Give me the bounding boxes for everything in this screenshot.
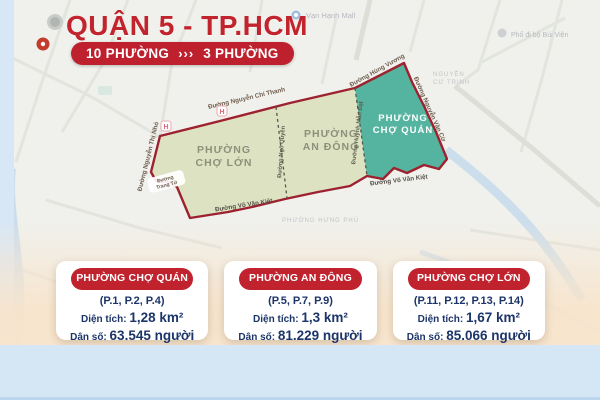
poi-marker-red-icon [37,38,50,51]
population-label: Dân số: [407,332,444,343]
area-value: 1,67 km² [466,310,520,325]
card-title-badge: PHƯỜNG AN ĐÔNG [239,268,361,290]
region-label-cho-lon: PHƯỜNG [197,143,251,156]
card-an-dong[interactable]: PHƯỜNG AN ĐÔNG (P.5, P.7, P.9) Diện tích… [224,261,376,340]
card-cho-lon[interactable]: PHƯỜNG CHỢ LỚN (P.11, P.12, P.13, P.14) … [393,261,545,340]
page-title: QUẬN 5 - TP.HCM [66,10,308,42]
bg-label-bui-vien: Phố đi bộ Bùi Viện [511,30,569,39]
ward-cards-row: PHƯỜNG CHỢ QUÁN (P.1, P.2, P.4) Diện tíc… [56,261,545,340]
card-wards: (P.5, P.7, P.9) [229,295,371,307]
card-wards: (P.11, P.12, P.13, P.14) [398,295,540,307]
bg-label-van-hanh-mall: Vạn Hạnh Mall [306,11,356,20]
area-label: Diện tích: [418,314,464,325]
ward-count-badge: 10 PHƯỜNG ››› 3 PHƯỜNG [71,42,294,65]
population-value: 63.545 người [110,328,195,343]
area-label: Diện tích: [81,314,127,325]
card-population: Dân số: 81.229 người [229,328,371,346]
region-label-cho-lon-2: CHỢ LỚN [196,156,253,169]
population-label: Dân số: [238,332,275,343]
card-area: Diện tích: 1,28 km² [61,310,203,328]
area-value: 1,28 km² [129,310,183,325]
bg-label-nguyen-cu-trinh: NGUYỄN [433,71,465,78]
region-label-cho-quan: PHƯỜNG [378,112,427,124]
card-title-badge: PHƯỜNG CHỢ QUÁN [71,268,193,290]
arrows-icon: ››› [178,47,194,60]
bg-label-nguyen-cu-trinh-2: CƯ TRINH [433,80,470,86]
bg-label-hung-phu: PHƯỜNG HƯNG PHÚ [282,217,359,224]
population-value: 85.066 người [446,328,531,343]
region-label-an-dong-2: AN ĐÔNG [303,140,360,153]
population-label: Dân số: [70,332,107,343]
badge-to-label: 3 PHƯỜNG [203,46,278,61]
hospital-marker-h2: H [219,109,224,116]
infographic-canvas: PHƯỜNG CHỢ LỚN PHƯỜNG AN ĐÔNG PHƯỜNG CHỢ… [0,0,600,400]
badge-from-label: 10 PHƯỜNG [86,46,169,61]
footer-bar: ARENTAL Đơn vị quản lý vận hành và cung … [0,345,600,400]
region-label-an-dong: PHƯỜNG [304,127,358,140]
card-cho-quan[interactable]: PHƯỜNG CHỢ QUÁN (P.1, P.2, P.4) Diện tíc… [56,261,208,340]
area-label: Diện tích: [253,314,299,325]
area-value: 1,3 km² [301,310,348,325]
card-population: Dân số: 63.545 người [61,328,203,346]
hospital-marker-h: H [163,124,168,131]
population-value: 81.229 người [278,328,363,343]
card-wards: (P.1, P.2, P.4) [61,295,203,307]
card-area: Diện tích: 1,3 km² [229,310,371,328]
left-blue-strip [0,0,14,345]
card-title-badge: PHƯỜNG CHỢ LỚN [408,268,530,290]
card-population: Dân số: 85.066 người [398,328,540,346]
region-label-cho-quan-2: CHỢ QUÁN [373,125,433,136]
card-area: Diện tích: 1,67 km² [398,310,540,328]
